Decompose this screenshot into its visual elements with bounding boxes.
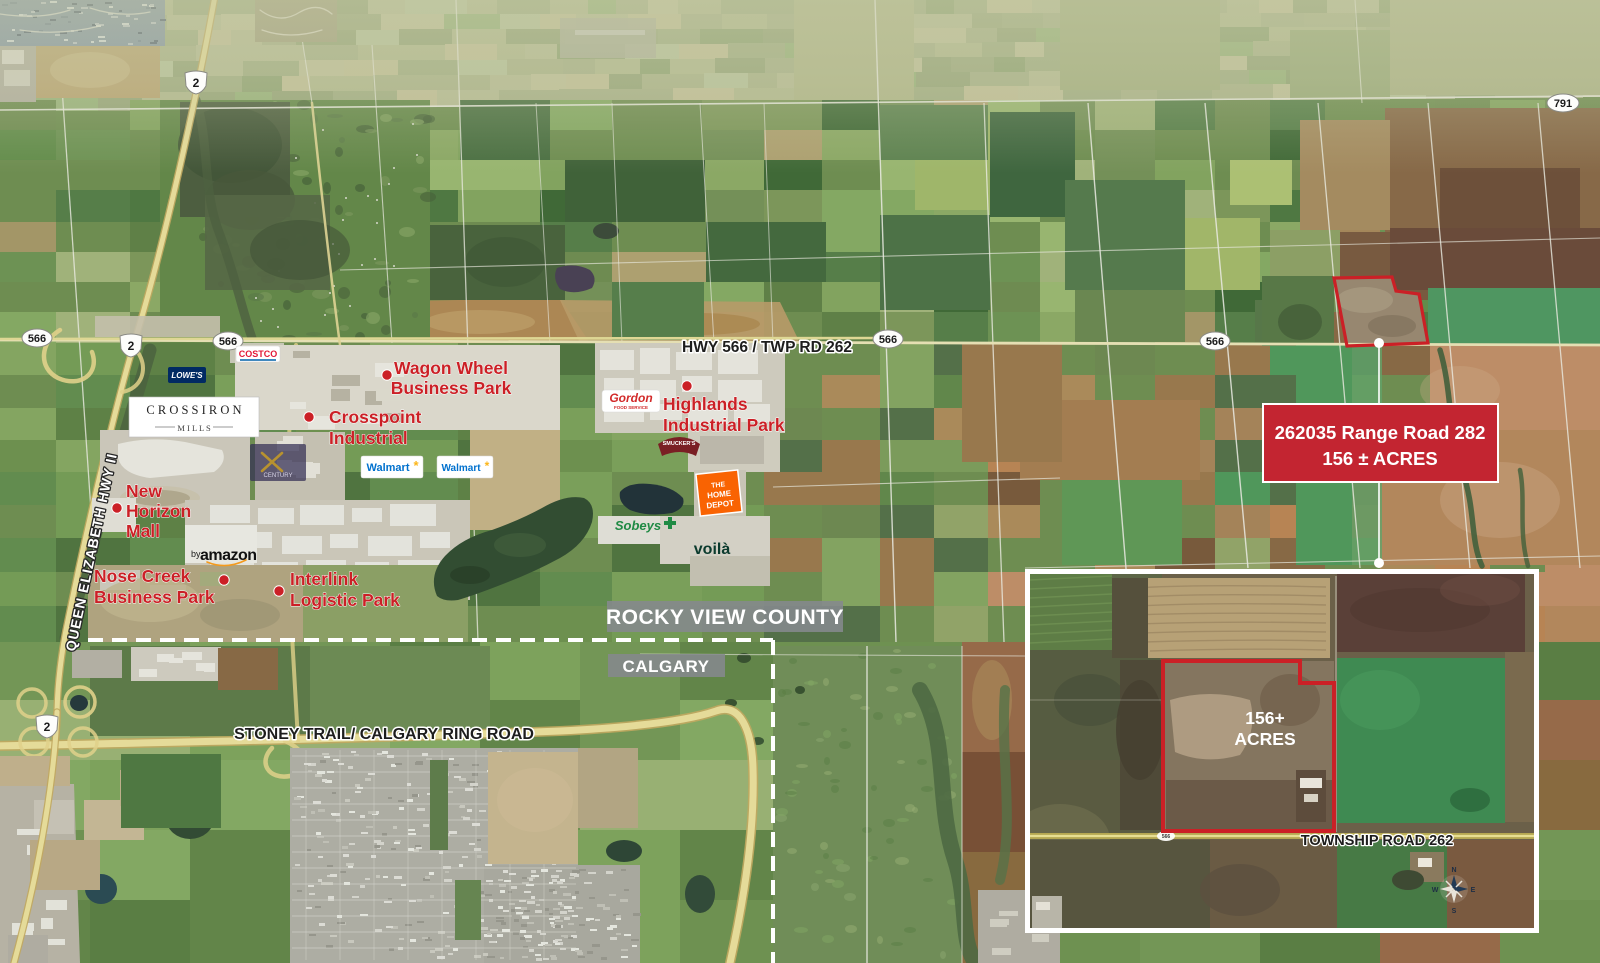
svg-text:S: S [1452, 908, 1457, 915]
svg-text:STONEY TRAIL/ CALGARY RING ROA: STONEY TRAIL/ CALGARY RING ROAD [234, 726, 534, 743]
svg-text:Logistic Park: Logistic Park [290, 590, 400, 610]
svg-text:*: * [485, 459, 490, 473]
svg-text:791: 791 [1554, 98, 1572, 110]
svg-text:Wagon Wheel: Wagon Wheel [394, 358, 508, 378]
svg-text:566: 566 [28, 333, 46, 345]
svg-text:M I L L S: M I L L S [177, 423, 211, 433]
svg-text:566: 566 [879, 334, 897, 346]
svg-text:Horizon: Horizon [126, 501, 191, 521]
svg-text:voilà: voilà [694, 541, 731, 558]
svg-text:Crosspoint: Crosspoint [329, 407, 422, 427]
svg-text:Industrial: Industrial [329, 428, 408, 448]
svg-text:Sobeys: Sobeys [615, 518, 661, 533]
svg-text:566: 566 [1162, 834, 1171, 840]
svg-text:New: New [126, 481, 162, 501]
svg-text:ROCKY VIEW COUNTY: ROCKY VIEW COUNTY [606, 606, 844, 629]
svg-text:Business Park: Business Park [391, 378, 512, 398]
svg-text:CALGARY: CALGARY [623, 657, 710, 676]
svg-text:156+: 156+ [1245, 708, 1284, 728]
svg-text:Interlink: Interlink [290, 569, 358, 589]
svg-text:ACRES: ACRES [1234, 729, 1295, 749]
svg-text:CENTURY: CENTURY [264, 473, 293, 479]
svg-text:SMUCKER'S: SMUCKER'S [663, 441, 696, 447]
svg-text:W: W [1432, 887, 1439, 894]
svg-text:TOWNSHIP ROAD 262: TOWNSHIP ROAD 262 [1301, 833, 1454, 849]
svg-text:2: 2 [128, 339, 135, 353]
svg-text:156 ± ACRES: 156 ± ACRES [1322, 448, 1437, 469]
svg-text:C R O S S I R O N: C R O S S I R O N [146, 403, 241, 417]
svg-text:2: 2 [193, 76, 200, 90]
svg-text:COSTCO: COSTCO [239, 349, 278, 359]
svg-text:Business Park: Business Park [94, 587, 215, 607]
svg-text:Mall: Mall [126, 521, 160, 541]
svg-text:566: 566 [1206, 336, 1224, 348]
svg-text:LOWE'S: LOWE'S [171, 371, 203, 380]
svg-text:N: N [1451, 867, 1456, 874]
svg-text:Walmart: Walmart [367, 462, 410, 474]
svg-text:Gordon: Gordon [609, 391, 652, 405]
svg-text:Highlands: Highlands [663, 394, 748, 414]
svg-text:FOOD SERVICE: FOOD SERVICE [614, 405, 648, 410]
svg-text:566: 566 [219, 336, 237, 348]
svg-text:Industrial Park: Industrial Park [663, 415, 785, 435]
svg-text:Nose Creek: Nose Creek [94, 566, 191, 586]
svg-text:HWY 566 / TWP RD 262: HWY 566 / TWP RD 262 [682, 339, 852, 356]
svg-text:amazon: amazon [200, 547, 257, 564]
svg-text:2: 2 [44, 720, 51, 734]
svg-text:Walmart: Walmart [441, 463, 481, 474]
svg-text:E: E [1471, 887, 1476, 894]
svg-text:THE: THE [711, 481, 726, 489]
svg-text:262035 Range Road 282: 262035 Range Road 282 [1275, 422, 1486, 443]
